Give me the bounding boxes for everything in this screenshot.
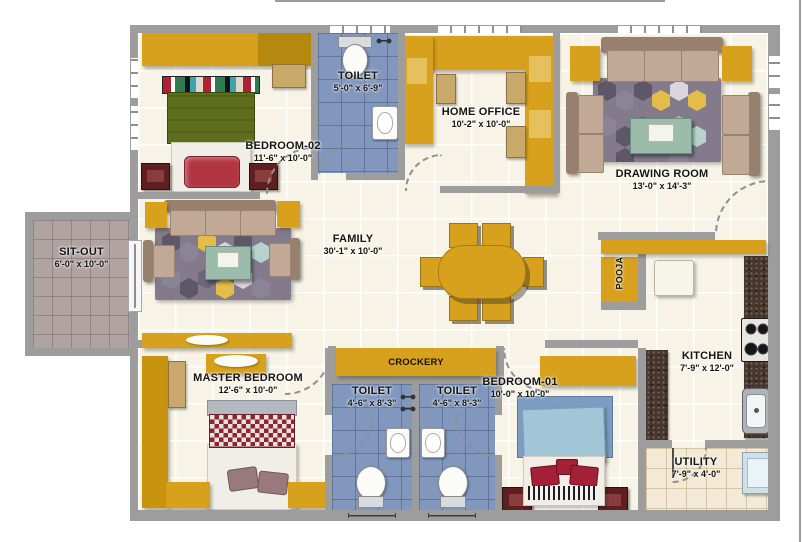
room-name: DRAWING ROOM (588, 168, 736, 181)
sofa-cushion (607, 50, 645, 82)
bed-runner (528, 486, 598, 500)
room-name: TOILET (318, 70, 398, 83)
wc-tank-icon (440, 496, 466, 508)
wall (138, 192, 260, 199)
room-name: POOJA (614, 255, 624, 292)
window (438, 26, 522, 33)
side-table (145, 202, 167, 228)
office-chair (436, 74, 456, 104)
office-chair (506, 126, 526, 158)
dining-chair (523, 257, 544, 287)
wardrobe (142, 356, 168, 508)
dining-chair (482, 296, 511, 321)
sideboard-basin (186, 335, 228, 345)
floor-plan: BEDROOM-02 11'-6" x 10'-0" TOILET 5'-0" … (0, 0, 802, 542)
room-dims: 6'-0" x 10'-0" (33, 259, 130, 269)
room-dims: 7'-9" x 12'-0" (648, 363, 766, 373)
wall (398, 33, 405, 180)
basin-bowl (377, 112, 394, 134)
coffee-table-tray (217, 252, 239, 268)
window (131, 106, 138, 150)
wc-icon (438, 466, 468, 500)
room-name: HOME OFFICE (420, 106, 542, 119)
basin-bowl (390, 433, 406, 452)
bed-blanket (209, 414, 295, 448)
washbasin-icon (421, 428, 445, 458)
room-label-kitchen: KITCHEN 7'-9" x 12'-0" (648, 350, 766, 373)
window (769, 56, 780, 88)
wall (638, 440, 672, 448)
room-name: UTILITY (644, 456, 748, 469)
wall (638, 348, 646, 510)
nightstand-top (605, 494, 622, 507)
window (769, 94, 780, 130)
dimension-tick (428, 513, 476, 518)
coffee-table-tray (648, 124, 674, 142)
sofa-back (566, 92, 578, 174)
room-label-pooja: POOJA (614, 255, 624, 292)
washer-lid (747, 458, 769, 488)
room-name: MASTER BEDROOM (168, 372, 328, 385)
room-dims: 12'-6" x 10'-0" (168, 385, 328, 395)
room-dims: 10'-2" x 10'-0" (420, 119, 542, 129)
wall (25, 212, 33, 356)
wall (25, 348, 138, 356)
room-label-toilet-left: TOILET 4'-6" x 8'-3" (332, 385, 412, 408)
room-dims: 10'-0" x 10'-0" (468, 389, 572, 399)
bed-bench (166, 482, 210, 508)
wardrobe (258, 33, 311, 66)
room-dims: 11'-6" x 10'-0" (228, 153, 338, 163)
sitout-floor (33, 220, 130, 348)
room-label-bedroom-02: BEDROOM-02 11'-6" x 10'-0" (228, 140, 338, 163)
window (330, 26, 390, 33)
wardrobe (142, 33, 258, 66)
wall (545, 340, 638, 348)
sofa-cushion (681, 50, 719, 82)
room-label-home-office: HOME OFFICE 10'-2" x 10'-0" (420, 106, 542, 129)
wall (705, 440, 768, 448)
room-name: FAMILY (298, 233, 408, 246)
desk-panel (529, 56, 551, 82)
room-label-drawing-room: DRAWING ROOM 13'-0" x 14'-3" (588, 168, 736, 191)
side-table (277, 201, 300, 227)
basin-bowl (425, 433, 441, 452)
sliding-door (128, 240, 142, 312)
room-dims: 7'-9" x 4'-0" (644, 469, 748, 479)
room-name: CROCKERY (388, 357, 444, 368)
wall (130, 310, 138, 521)
room-dims: 13'-0" x 14'-3" (588, 181, 736, 191)
armchair-cushion (153, 245, 175, 278)
wall (325, 455, 332, 510)
pillow (257, 470, 289, 495)
image-edge-line (275, 0, 665, 2)
shower-mixer-icon (376, 38, 392, 44)
wall (553, 33, 560, 193)
room-label-master-bedroom: MASTER BEDROOM 12'-6" x 10'-0" (168, 372, 328, 395)
washbasin-icon (372, 106, 398, 140)
washbasin-icon (386, 428, 410, 458)
room-dims: 5'-0" x 6'-9" (318, 83, 398, 93)
image-edge-line (799, 0, 801, 542)
pillow (569, 465, 599, 488)
dresser (272, 64, 306, 88)
door-rail (134, 244, 136, 308)
room-label-family: FAMILY 30'-1" x 10'-0" (298, 233, 408, 256)
dining-table (438, 245, 526, 299)
dimension-tick (348, 513, 396, 518)
room-label-bedroom-01: BEDROOM-01 10'-0" x 10'-0" (468, 376, 572, 399)
bed-quilt (167, 92, 255, 144)
nightstand-top (147, 170, 163, 183)
room-dims: 4'-6" x 8'-3" (419, 398, 495, 408)
room-label-utility: UTILITY 7'-9" x 4'-0" (644, 456, 748, 479)
sofa-cushion (722, 95, 750, 135)
room-label-sit-out: SIT-OUT 6'-0" x 10'-0" (33, 246, 130, 269)
dressing-mirror (214, 355, 258, 367)
sofa-cushion (578, 95, 604, 134)
wall (598, 232, 715, 240)
dining-chair (449, 296, 478, 321)
window (131, 58, 138, 98)
sofa-cushion (644, 50, 682, 82)
pillow (227, 466, 260, 492)
armchair-cushion (269, 243, 291, 277)
crockery-unit: CROCKERY (336, 348, 496, 376)
room-name: KITCHEN (648, 350, 766, 363)
bed-bench (288, 482, 326, 508)
room-name: BEDROOM-01 (468, 376, 572, 389)
room-label-toilet-top: TOILET 5'-0" x 6'-9" (318, 70, 398, 93)
refrigerator-icon (654, 260, 694, 296)
wc-icon (356, 466, 386, 500)
wall (25, 212, 130, 220)
side-table (570, 46, 600, 81)
kitchen-sink-icon (742, 388, 770, 434)
wall (346, 173, 405, 180)
side-table (722, 46, 752, 81)
room-dims: 4'-6" x 8'-3" (332, 398, 412, 408)
office-chair (506, 72, 526, 104)
wall (412, 384, 419, 510)
sofa-cushion (240, 210, 276, 236)
wall (495, 455, 502, 510)
kitchen-counter (601, 240, 766, 254)
sofa-cushion (170, 210, 206, 236)
desk-panel (407, 58, 427, 84)
room-name: TOILET (332, 385, 412, 398)
wall (440, 186, 560, 193)
room-dims: 30'-1" x 10'-0" (298, 246, 408, 256)
sofa-cushion (205, 210, 241, 236)
room-name: BEDROOM-02 (228, 140, 338, 153)
nightstand (141, 163, 170, 190)
room-name: SIT-OUT (33, 246, 130, 259)
window (618, 26, 702, 33)
armchair-back (143, 240, 153, 282)
wall (601, 302, 646, 310)
wc-tank-icon (358, 496, 384, 508)
